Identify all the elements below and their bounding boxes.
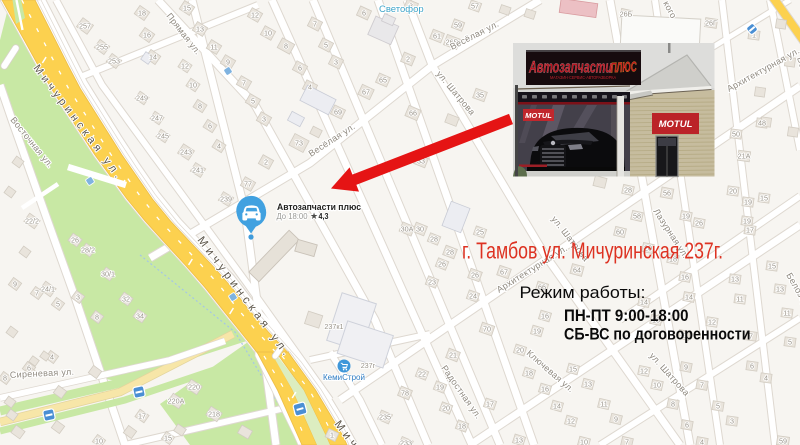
svg-text:КемиСтрой: КемиСтрой [323, 372, 365, 382]
svg-text:13: 13 [731, 275, 739, 284]
svg-text:★: ★ [310, 211, 318, 221]
svg-text:19: 19 [436, 383, 444, 392]
svg-text:7: 7 [625, 438, 629, 445]
svg-text:9: 9 [684, 363, 688, 372]
svg-text:24: 24 [469, 292, 477, 301]
svg-text:6: 6 [362, 9, 366, 18]
svg-text:11: 11 [736, 295, 743, 304]
svg-text:7: 7 [313, 20, 317, 29]
svg-text:220А: 220А [168, 397, 185, 406]
svg-text:9: 9 [226, 58, 230, 67]
svg-text:30А: 30А [401, 225, 414, 234]
svg-text:58: 58 [633, 212, 641, 221]
svg-text:17: 17 [746, 226, 754, 235]
svg-text:26: 26 [438, 260, 446, 269]
svg-text:Автозапчасти: Автозапчасти [528, 59, 612, 77]
svg-text:ПН-ПТ 9:00-18:00: ПН-ПТ 9:00-18:00 [564, 306, 689, 325]
svg-text:9: 9 [13, 280, 17, 289]
svg-text:Режим работы:: Режим работы: [520, 284, 646, 302]
svg-text:3: 3 [262, 115, 266, 124]
svg-text:17: 17 [486, 400, 494, 409]
svg-text:MOTUL: MOTUL [525, 111, 552, 120]
svg-text:220: 220 [188, 383, 200, 392]
svg-text:247: 247 [151, 114, 163, 123]
svg-text:4: 4 [764, 374, 768, 383]
svg-text:16: 16 [681, 273, 689, 282]
svg-text:18: 18 [458, 422, 466, 431]
svg-text:19: 19 [682, 212, 690, 221]
svg-text:19: 19 [743, 217, 751, 226]
svg-text:11: 11 [783, 309, 790, 318]
svg-text:До 18:00: До 18:00 [277, 211, 308, 221]
svg-text:5: 5 [251, 97, 255, 106]
svg-text:64: 64 [573, 266, 581, 275]
svg-text:8: 8 [198, 102, 202, 111]
svg-text:16: 16 [143, 31, 151, 40]
svg-text:69: 69 [334, 108, 342, 117]
svg-text:3: 3 [334, 58, 338, 67]
svg-text:20: 20 [516, 346, 524, 355]
svg-text:5: 5 [324, 41, 328, 50]
svg-text:17: 17 [138, 412, 146, 421]
svg-text:59: 59 [454, 21, 462, 30]
svg-text:6: 6 [208, 122, 212, 131]
svg-text:4,3: 4,3 [319, 211, 329, 221]
svg-text:15: 15 [183, 4, 191, 13]
svg-text:7: 7 [242, 79, 246, 88]
svg-text:59: 59 [779, 437, 787, 445]
svg-text:73: 73 [295, 139, 303, 148]
svg-text:14: 14 [149, 53, 157, 62]
svg-text:6: 6 [750, 362, 754, 371]
svg-text:20: 20 [729, 187, 737, 196]
svg-text:77: 77 [244, 180, 252, 189]
svg-text:237г: 237г [361, 361, 376, 370]
svg-text:26: 26 [695, 219, 703, 228]
svg-text:9: 9 [614, 415, 618, 424]
svg-text:67: 67 [362, 88, 370, 97]
svg-text:8: 8 [3, 374, 7, 383]
svg-text:16: 16 [541, 385, 549, 394]
svg-text:2: 2 [406, 55, 410, 64]
svg-text:8: 8 [284, 42, 288, 51]
svg-text:г. Тамбов ул. Мичуринская 237г: г. Тамбов ул. Мичуринская 237г. [462, 238, 723, 264]
svg-text:18: 18 [138, 9, 146, 18]
svg-text:30/1: 30/1 [101, 270, 115, 279]
svg-text:13: 13 [196, 25, 204, 34]
svg-text:28: 28 [430, 235, 438, 244]
svg-text:15: 15 [569, 365, 577, 374]
svg-text:235: 235 [379, 413, 391, 422]
svg-text:12: 12 [251, 11, 259, 20]
svg-text:6: 6 [298, 64, 302, 73]
svg-text:28: 28 [446, 248, 454, 257]
svg-text:66: 66 [409, 109, 417, 118]
svg-text:4: 4 [50, 353, 54, 362]
svg-text:21: 21 [449, 351, 457, 360]
svg-text:35: 35 [476, 91, 484, 100]
svg-text:5: 5 [56, 300, 60, 309]
svg-text:2: 2 [264, 158, 268, 167]
svg-text:МАГАЗИН·СЕРВИС·АВТОРАЗБОРКА: МАГАЗИН·СЕРВИС·АВТОРАЗБОРКА [550, 75, 616, 80]
svg-text:233: 233 [400, 439, 412, 445]
svg-text:11: 11 [600, 400, 607, 409]
svg-text:32: 32 [122, 295, 130, 304]
svg-text:10: 10 [264, 29, 272, 38]
svg-text:11: 11 [210, 43, 217, 52]
svg-text:257: 257 [79, 22, 91, 31]
svg-text:28/2: 28/2 [81, 246, 95, 255]
svg-text:239: 239 [220, 195, 232, 204]
svg-text:78: 78 [401, 389, 409, 398]
svg-text:70: 70 [483, 325, 491, 334]
svg-text:65: 65 [379, 76, 387, 85]
svg-text:26Г: 26Г [705, 19, 717, 28]
svg-text:23: 23 [428, 278, 436, 287]
svg-text:25: 25 [476, 228, 484, 237]
svg-text:249: 249 [136, 94, 148, 103]
svg-text:61: 61 [433, 32, 441, 41]
svg-text:19: 19 [744, 198, 752, 207]
svg-text:10: 10 [653, 381, 661, 390]
svg-text:5: 5 [716, 402, 720, 411]
svg-text:28: 28 [624, 186, 632, 195]
svg-text:245: 245 [157, 132, 169, 141]
svg-text:22: 22 [418, 370, 426, 379]
svg-text:241: 241 [192, 166, 204, 175]
svg-text:10: 10 [189, 81, 197, 90]
svg-text:22/2: 22/2 [25, 217, 39, 226]
svg-text:12: 12 [640, 367, 648, 376]
svg-text:10: 10 [95, 437, 103, 445]
svg-text:7: 7 [35, 289, 39, 298]
svg-text:56: 56 [663, 189, 671, 198]
svg-text:13: 13 [584, 380, 592, 389]
svg-text:3: 3 [76, 293, 80, 302]
svg-text:57: 57 [471, 2, 479, 11]
svg-text:1: 1 [330, 431, 334, 440]
svg-text:18: 18 [525, 369, 533, 378]
svg-text:10: 10 [580, 438, 588, 445]
svg-text:19: 19 [533, 327, 541, 336]
svg-text:26: 26 [71, 236, 79, 245]
svg-text:4: 4 [217, 142, 221, 151]
svg-text:20: 20 [442, 404, 450, 413]
svg-text:34: 34 [136, 312, 144, 321]
svg-text:8: 8 [95, 313, 99, 322]
svg-text:ПЛЮС: ПЛЮС [610, 58, 637, 75]
svg-text:253: 253 [108, 57, 120, 66]
svg-text:15: 15 [760, 194, 768, 203]
svg-text:13: 13 [776, 285, 784, 294]
svg-text:MOTUL: MOTUL [659, 119, 693, 130]
svg-text:12: 12 [181, 62, 189, 71]
svg-text:48: 48 [758, 119, 766, 128]
svg-text:30: 30 [416, 225, 424, 234]
svg-text:60: 60 [616, 228, 624, 237]
svg-text:3: 3 [730, 417, 734, 426]
svg-text:15: 15 [164, 434, 172, 443]
svg-text:14: 14 [553, 402, 561, 411]
svg-text:21А: 21А [738, 152, 751, 161]
svg-text:26: 26 [471, 271, 479, 280]
svg-text:26Б: 26Б [620, 10, 633, 19]
svg-text:255: 255 [96, 43, 108, 52]
svg-text:16: 16 [541, 312, 549, 321]
svg-text:СБ-ВС по договоренности: СБ-ВС по договоренности [564, 325, 751, 344]
svg-text:Светофор: Светофор [379, 4, 424, 15]
svg-text:237к1: 237к1 [324, 322, 343, 331]
svg-text:4: 4 [308, 83, 312, 92]
svg-text:13: 13 [515, 436, 523, 445]
svg-text:50: 50 [732, 130, 740, 139]
svg-text:243: 243 [180, 148, 192, 157]
svg-text:5: 5 [788, 338, 792, 347]
svg-text:67: 67 [500, 268, 508, 277]
svg-text:218: 218 [208, 410, 220, 419]
svg-text:7: 7 [700, 381, 704, 390]
svg-text:14: 14 [685, 293, 693, 302]
svg-text:8: 8 [671, 400, 675, 409]
svg-text:12: 12 [567, 417, 575, 426]
svg-text:15: 15 [768, 262, 776, 271]
svg-text:4: 4 [700, 438, 704, 445]
svg-text:24/1: 24/1 [41, 285, 55, 294]
svg-text:6: 6 [685, 421, 689, 430]
